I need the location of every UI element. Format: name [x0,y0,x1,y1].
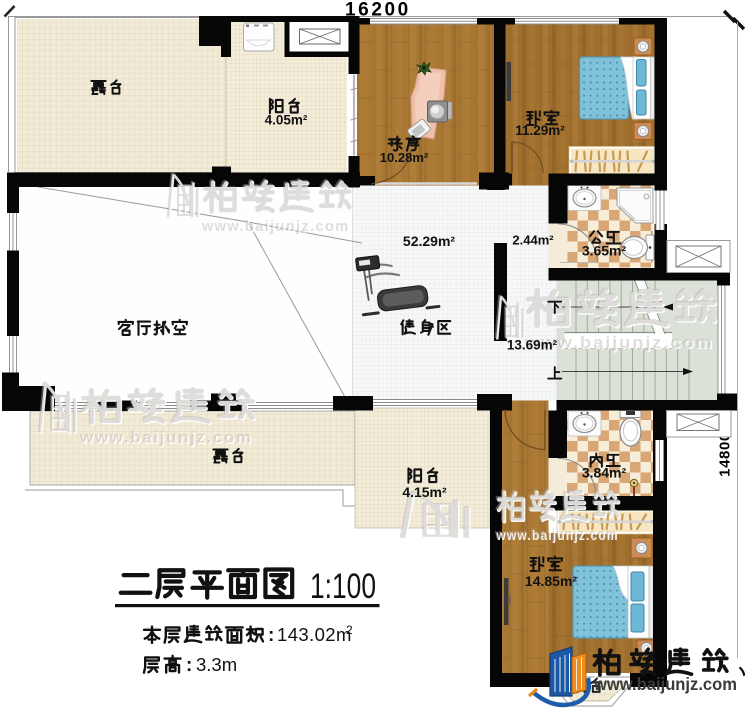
svg-text:2.44m²: 2.44m² [512,233,554,248]
svg-text:3.3m: 3.3m [196,654,237,675]
svg-text:4.15m²: 4.15m² [402,484,447,500]
svg-text:14.85m²: 14.85m² [525,573,577,589]
svg-text::: : [268,625,274,646]
svg-text:10.28m²: 10.28m² [380,150,429,165]
svg-text:14800: 14800 [717,432,734,477]
svg-text:3.84m²: 3.84m² [582,465,627,481]
svg-text:13.69m²: 13.69m² [507,338,558,353]
svg-text:3.65m²: 3.65m² [582,243,627,259]
svg-text::: : [186,655,192,676]
svg-text:1:100: 1:100 [310,567,376,606]
svg-text:52.29m²: 52.29m² [403,233,455,249]
svg-text:2: 2 [346,623,353,637]
svg-text:143.02m: 143.02m [277,624,352,645]
svg-text:11.29m²: 11.29m² [515,123,565,138]
svg-text:www.baijunjz.com: www.baijunjz.com [593,674,737,694]
svg-text:4.05m²: 4.05m² [265,113,308,128]
